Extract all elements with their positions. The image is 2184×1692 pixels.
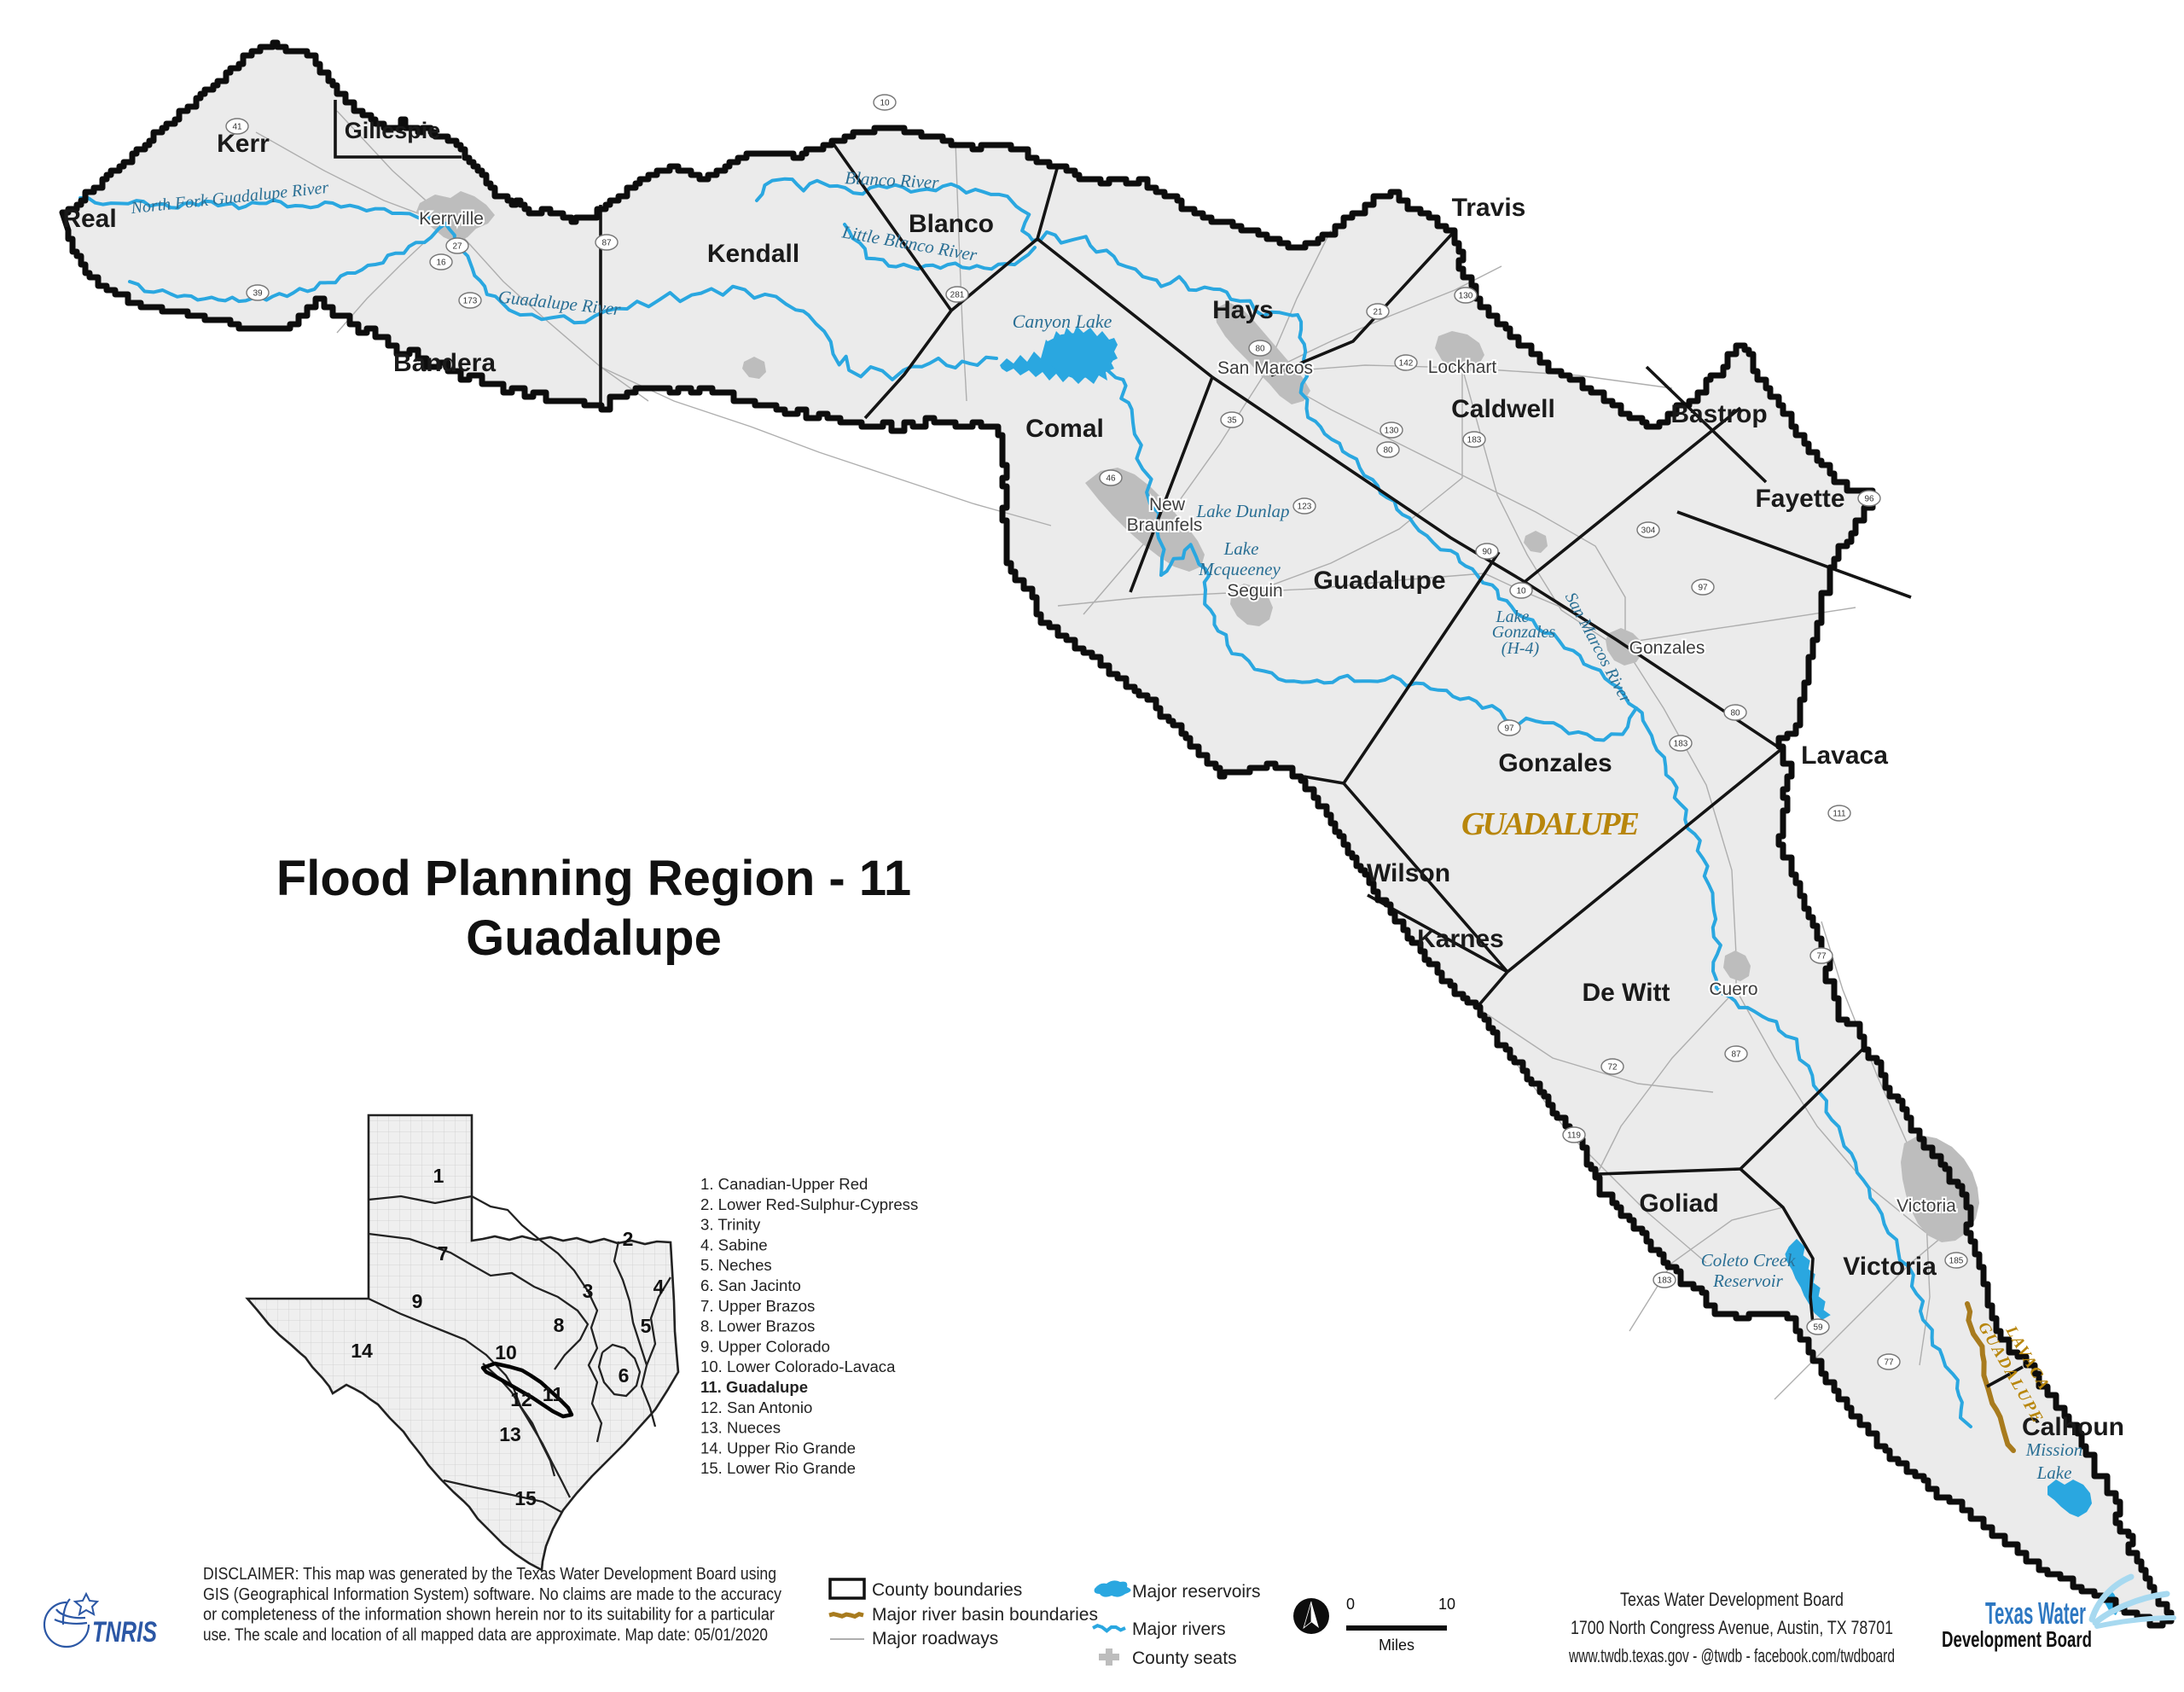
svg-text:87: 87 — [1731, 1050, 1741, 1060]
svg-text:(H-4): (H-4) — [1501, 639, 1540, 658]
svg-text:183: 183 — [1467, 436, 1482, 445]
svg-text:130: 130 — [1459, 292, 1473, 301]
svg-text:173: 173 — [463, 297, 478, 306]
svg-text:80: 80 — [1383, 446, 1393, 456]
svg-text:Victoria: Victoria — [1843, 1253, 1937, 1281]
svg-text:281: 281 — [950, 291, 965, 300]
svg-text:2. Lower Red-Sulphur-Cypress: 2. Lower Red-Sulphur-Cypress — [700, 1195, 918, 1213]
svg-text:Braunfels: Braunfels — [1127, 515, 1203, 535]
svg-text:San Marcos: San Marcos — [1217, 358, 1313, 378]
svg-text:New: New — [1149, 495, 1186, 515]
svg-text:97: 97 — [1698, 584, 1708, 593]
svg-text:3. Trinity: 3. Trinity — [700, 1216, 761, 1234]
svg-text:Major reservoirs: Major reservoirs — [1132, 1582, 1261, 1602]
svg-text:Development Board: Development Board — [1942, 1626, 2092, 1652]
svg-text:Gillespie: Gillespie — [345, 118, 441, 143]
svg-text:46: 46 — [1106, 474, 1116, 484]
svg-text:Major river basin boundaries: Major river basin boundaries — [872, 1605, 1098, 1625]
svg-text:or completeness of the informa: or completeness of the information shown… — [203, 1606, 775, 1625]
svg-text:14: 14 — [351, 1340, 373, 1362]
svg-text:Texas Water Development Board: Texas Water Development Board — [1620, 1589, 1844, 1610]
svg-text:Victoria: Victoria — [1896, 1196, 1956, 1216]
svg-text:72: 72 — [1607, 1063, 1618, 1073]
svg-text:Goliad: Goliad — [1639, 1189, 1718, 1218]
svg-text:1: 1 — [433, 1165, 444, 1187]
svg-text:Canyon Lake: Canyon Lake — [1013, 311, 1112, 332]
svg-text:DISCLAIMER: This map was gener: DISCLAIMER: This map was generated by th… — [203, 1565, 776, 1584]
svg-text:Reservoir: Reservoir — [1712, 1270, 1783, 1291]
svg-text:130: 130 — [1385, 427, 1399, 436]
svg-text:Caldwell: Caldwell — [1451, 395, 1555, 423]
svg-text:10: 10 — [1438, 1596, 1455, 1613]
svg-text:35: 35 — [1227, 416, 1237, 426]
svg-text:183: 183 — [1674, 740, 1688, 749]
svg-text:Lavaca: Lavaca — [1801, 741, 1888, 770]
svg-text:87: 87 — [601, 239, 612, 248]
svg-text:8: 8 — [554, 1314, 565, 1336]
svg-text:Comal: Comal — [1025, 415, 1104, 443]
svg-text:Karnes: Karnes — [1417, 925, 1504, 953]
svg-text:Hays: Hays — [1212, 296, 1274, 324]
svg-text:www.twdb.texas.gov - @twdb - f: www.twdb.texas.gov - @twdb - facebook.co… — [1568, 1645, 1895, 1666]
svg-text:9: 9 — [412, 1290, 423, 1312]
svg-text:5: 5 — [641, 1315, 652, 1337]
svg-text:16: 16 — [436, 259, 446, 268]
svg-text:7: 7 — [438, 1242, 449, 1265]
svg-text:Bandera: Bandera — [393, 349, 496, 377]
svg-text:39: 39 — [253, 289, 263, 299]
svg-text:Guadalupe: Guadalupe — [466, 910, 722, 966]
svg-text:Gonzales: Gonzales — [1498, 749, 1612, 777]
svg-text:6: 6 — [619, 1364, 630, 1387]
svg-text:TNRIS: TNRIS — [92, 1616, 157, 1648]
svg-text:County boundaries: County boundaries — [872, 1580, 1022, 1600]
svg-text:5. Neches: 5. Neches — [700, 1256, 772, 1274]
svg-text:Coleto Creek: Coleto Creek — [1701, 1250, 1796, 1270]
svg-text:Fayette: Fayette — [1755, 485, 1844, 513]
svg-text:10: 10 — [880, 99, 890, 108]
svg-text:Travis: Travis — [1452, 194, 1526, 222]
svg-text:185: 185 — [1949, 1257, 1964, 1266]
svg-text:2: 2 — [623, 1228, 634, 1250]
svg-text:4. Sabine: 4. Sabine — [700, 1236, 768, 1253]
svg-text:6. San Jacinto: 6. San Jacinto — [700, 1276, 801, 1294]
svg-text:77: 77 — [1816, 952, 1827, 962]
svg-text:21: 21 — [1373, 308, 1383, 317]
svg-text:13. Nueces: 13. Nueces — [700, 1419, 781, 1437]
svg-text:Flood Planning Region - 11: Flood Planning Region - 11 — [276, 851, 911, 906]
svg-text:4: 4 — [653, 1276, 665, 1298]
svg-text:Mission: Mission — [2025, 1439, 2083, 1460]
svg-text:119: 119 — [1567, 1131, 1581, 1141]
svg-text:10. Lower Colorado-Lavaca: 10. Lower Colorado-Lavaca — [700, 1358, 896, 1375]
svg-text:Major roadways: Major roadways — [872, 1629, 998, 1648]
svg-text:Lockhart: Lockhart — [1428, 358, 1497, 377]
svg-text:111: 111 — [1833, 810, 1846, 819]
svg-text:90: 90 — [1482, 548, 1492, 557]
svg-text:12: 12 — [510, 1388, 532, 1410]
svg-text:Seguin: Seguin — [1227, 581, 1282, 601]
svg-text:Lake Dunlap: Lake Dunlap — [1195, 501, 1289, 521]
svg-text:13: 13 — [499, 1423, 521, 1445]
svg-text:80: 80 — [1730, 709, 1740, 718]
svg-text:77: 77 — [1884, 1358, 1894, 1368]
svg-text:10: 10 — [1516, 587, 1526, 596]
svg-text:GIS (Geographical Information: GIS (Geographical Information System) so… — [203, 1585, 781, 1604]
svg-text:Miles: Miles — [1379, 1637, 1414, 1654]
svg-text:12. San Antonio: 12. San Antonio — [700, 1398, 812, 1416]
svg-text:Kerrville: Kerrville — [419, 209, 484, 229]
svg-text:123: 123 — [1298, 503, 1312, 512]
svg-text:59: 59 — [1813, 1323, 1823, 1333]
svg-text:Bastrop: Bastrop — [1670, 400, 1767, 428]
svg-text:304: 304 — [1641, 526, 1656, 536]
svg-text:Real: Real — [62, 205, 116, 233]
svg-text:Major rivers: Major rivers — [1132, 1619, 1226, 1639]
svg-text:9. Upper Colorado: 9. Upper Colorado — [700, 1337, 830, 1355]
svg-text:0: 0 — [1346, 1596, 1355, 1613]
svg-text:97: 97 — [1504, 724, 1514, 734]
svg-text:3: 3 — [583, 1280, 594, 1302]
svg-text:1. Canadian-Upper Red: 1. Canadian-Upper Red — [700, 1175, 868, 1193]
svg-text:County seats: County seats — [1132, 1648, 1237, 1668]
svg-text:Kendall: Kendall — [707, 240, 799, 268]
svg-text:10: 10 — [495, 1341, 517, 1363]
svg-text:11. Guadalupe: 11. Guadalupe — [700, 1378, 808, 1396]
svg-text:142: 142 — [1399, 359, 1414, 369]
svg-text:De Witt: De Witt — [1582, 979, 1670, 1007]
svg-text:7. Upper Brazos: 7. Upper Brazos — [700, 1297, 815, 1315]
svg-text:Texas Water: Texas Water — [1985, 1596, 2086, 1631]
svg-text:11: 11 — [543, 1383, 564, 1405]
svg-text:Cuero: Cuero — [1709, 980, 1757, 999]
svg-text:27: 27 — [452, 242, 462, 252]
svg-text:Lake: Lake — [1223, 538, 1259, 559]
svg-text:Gonzales: Gonzales — [1629, 638, 1705, 658]
svg-text:Kerr: Kerr — [217, 130, 270, 158]
svg-text:8. Lower Brazos: 8. Lower Brazos — [700, 1317, 815, 1335]
svg-text:41: 41 — [232, 123, 242, 132]
svg-text:Lake: Lake — [2036, 1462, 2072, 1483]
svg-text:Blanco: Blanco — [909, 210, 994, 238]
svg-text:15: 15 — [514, 1487, 537, 1509]
svg-text:80: 80 — [1255, 345, 1265, 354]
svg-text:Guadalupe: Guadalupe — [1313, 567, 1445, 595]
svg-text:GUADALUPE: GUADALUPE — [1461, 806, 1642, 842]
svg-text:14. Upper Rio Grande: 14. Upper Rio Grande — [700, 1439, 856, 1457]
svg-text:Wilson: Wilson — [1367, 859, 1450, 887]
svg-text:1700 North Congress Avenue, Au: 1700 North Congress Avenue, Austin, TX 7… — [1571, 1617, 1893, 1638]
svg-text:183: 183 — [1658, 1276, 1672, 1286]
svg-text:96: 96 — [1864, 495, 1874, 504]
svg-text:Mcqueeney: Mcqueeney — [1198, 559, 1281, 579]
svg-text:15. Lower Rio Grande: 15. Lower Rio Grande — [700, 1459, 856, 1477]
svg-text:use. The scale and location of: use. The scale and location of all mappe… — [203, 1625, 768, 1644]
